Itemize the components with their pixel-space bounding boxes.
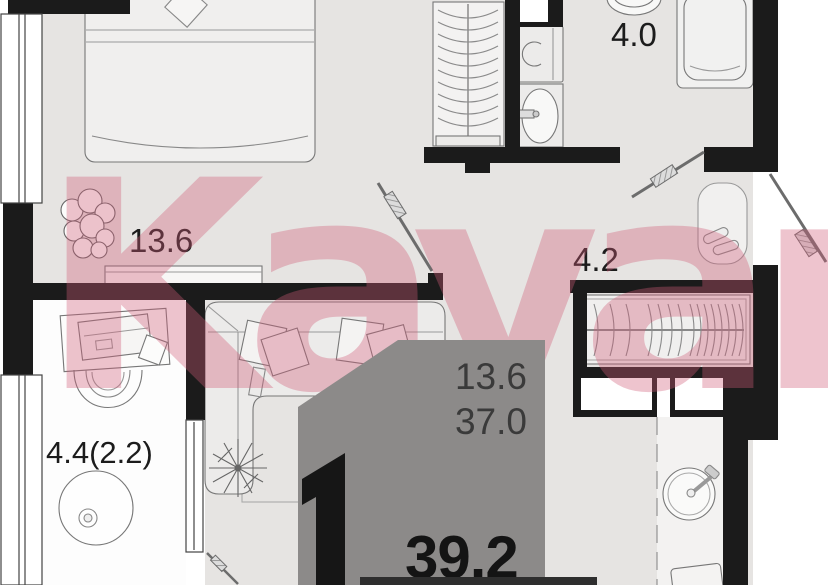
washing-machine: [516, 26, 563, 82]
bedroom-window: [1, 14, 42, 203]
bathtub: [677, 0, 753, 88]
badge-total-area: 39.2: [405, 524, 518, 585]
wall-stub: [548, 0, 563, 22]
badge-living-area: 13.6: [455, 356, 527, 397]
balcony-window: [1, 375, 42, 585]
bathroom-area-label: 4.0: [611, 16, 657, 53]
badge-floor-area: 37.0: [455, 401, 527, 442]
wall-right-lower: [723, 440, 748, 585]
wall-niche: [520, 0, 548, 22]
round-table: [59, 471, 133, 545]
floor-plan: 13.6 4.0 4.2 4.4(2.2) Kayan 13.6 37.0 39…: [0, 0, 828, 585]
wall: [8, 0, 130, 14]
bottom-wall-over-badge: [360, 577, 597, 585]
wall-niche-bottom: [520, 22, 563, 27]
